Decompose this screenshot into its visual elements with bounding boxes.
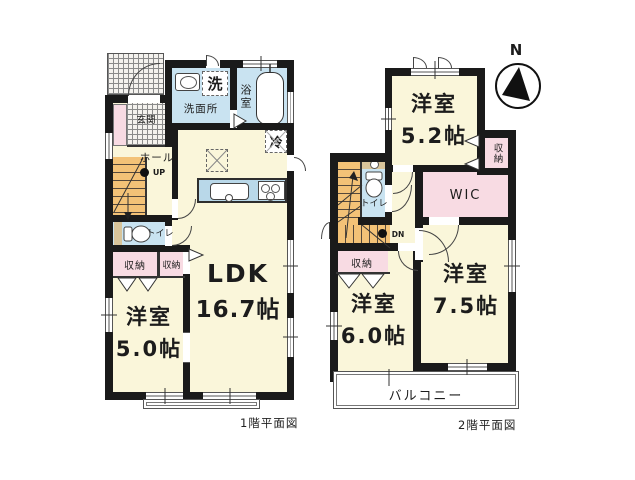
wall — [330, 153, 392, 162]
window-flap — [321, 222, 330, 239]
window — [287, 92, 294, 123]
bedroom52-door-gap — [393, 165, 413, 172]
stairs-up-label: UP — [151, 167, 167, 178]
bedroom1-name: 洋室 — [126, 301, 172, 331]
refrigerator-label: 冷 — [269, 132, 282, 151]
window — [287, 318, 294, 357]
compass-circle — [495, 63, 541, 109]
hall-label: ホール — [140, 150, 174, 164]
stairs-up-dot — [140, 168, 149, 177]
toilet1-counter — [114, 222, 122, 245]
window — [448, 363, 487, 371]
washing-machine: 洗 — [202, 71, 228, 96]
toilet2-label: トイレ — [360, 196, 388, 209]
ldk-label: LDK 16.7帖 — [183, 260, 293, 322]
closet60-front-line — [336, 272, 390, 274]
wall — [358, 217, 392, 225]
window — [411, 68, 459, 76]
closet52-label: 収納 — [490, 139, 503, 168]
stairs-dn-dot — [378, 229, 387, 238]
stairs-edge — [145, 157, 147, 215]
entrance-door-gap — [128, 95, 160, 103]
wall — [113, 245, 190, 252]
bedroom1-label: 洋室 5.0帖 — [108, 302, 190, 362]
ldk-name: LDK — [207, 259, 269, 288]
washroom-door-flap — [206, 55, 219, 66]
closet-front-line — [113, 276, 185, 278]
floor2-caption: 2階平面図 — [458, 417, 516, 433]
compass-north-label: N — [504, 41, 528, 59]
bedroom52-label: 洋室 5.2帖 — [390, 86, 478, 152]
washroom-label: 洗面所 — [170, 100, 232, 116]
bedroom60-name: 洋室 — [351, 288, 397, 318]
kitchen-faucet — [225, 194, 233, 202]
refrigerator: 冷 — [265, 130, 287, 153]
window — [105, 133, 113, 159]
wic-label: WIC — [423, 186, 508, 204]
bedroom60-door-gap — [398, 243, 418, 251]
bathtub — [256, 72, 284, 125]
bedroom75-size: 7.5帖 — [433, 290, 499, 320]
bedroom52-name: 洋室 — [411, 88, 457, 118]
stove-burner — [266, 192, 275, 201]
stairs-dn-label: DN — [390, 229, 406, 239]
floor1-caption: 1階平面図 — [240, 415, 298, 431]
backdoor-arc — [294, 157, 306, 171]
window-flap — [438, 57, 452, 68]
stairs-floor1 — [113, 157, 145, 215]
shoe-cabinet — [113, 104, 127, 146]
bedroom60-label: 洋室 6.0帖 — [330, 288, 418, 350]
bedroom52-size: 5.2帖 — [401, 120, 467, 150]
wall — [113, 215, 172, 222]
bedroom75-label: 洋室 7.5帖 — [421, 258, 511, 320]
bedroom1-size: 5.0帖 — [116, 333, 182, 363]
balcony-label: バルコニー — [333, 385, 519, 403]
wic-door-gap — [429, 217, 459, 225]
floor-plan-canvas: 洗 冷 — [0, 0, 635, 480]
washbasin-bowl — [180, 76, 197, 89]
stairs-floor2-run — [338, 162, 362, 225]
toilet1-label: トイレ — [146, 226, 174, 239]
kitchen-backdoor-gap — [287, 155, 294, 171]
window — [243, 60, 277, 68]
entrance-label: 玄関 — [129, 112, 163, 126]
terrace-step — [143, 399, 260, 409]
bedroom75-name: 洋室 — [443, 258, 489, 288]
ldk-size: 16.7帖 — [196, 290, 281, 324]
bedroom60-size: 6.0帖 — [341, 320, 407, 350]
closet60-label: 収納 — [336, 253, 388, 271]
bath-label: 浴室 — [238, 76, 252, 118]
floor-hatch — [206, 149, 228, 172]
terrace-step-inner — [146, 402, 257, 406]
closet1a-label: 収納 — [113, 255, 157, 273]
window-flap — [413, 57, 427, 68]
wall — [477, 68, 485, 172]
line-art-overlay — [0, 0, 635, 480]
closet1b-label: 収納 — [159, 255, 184, 273]
washing-machine-label: 洗 — [207, 73, 222, 94]
